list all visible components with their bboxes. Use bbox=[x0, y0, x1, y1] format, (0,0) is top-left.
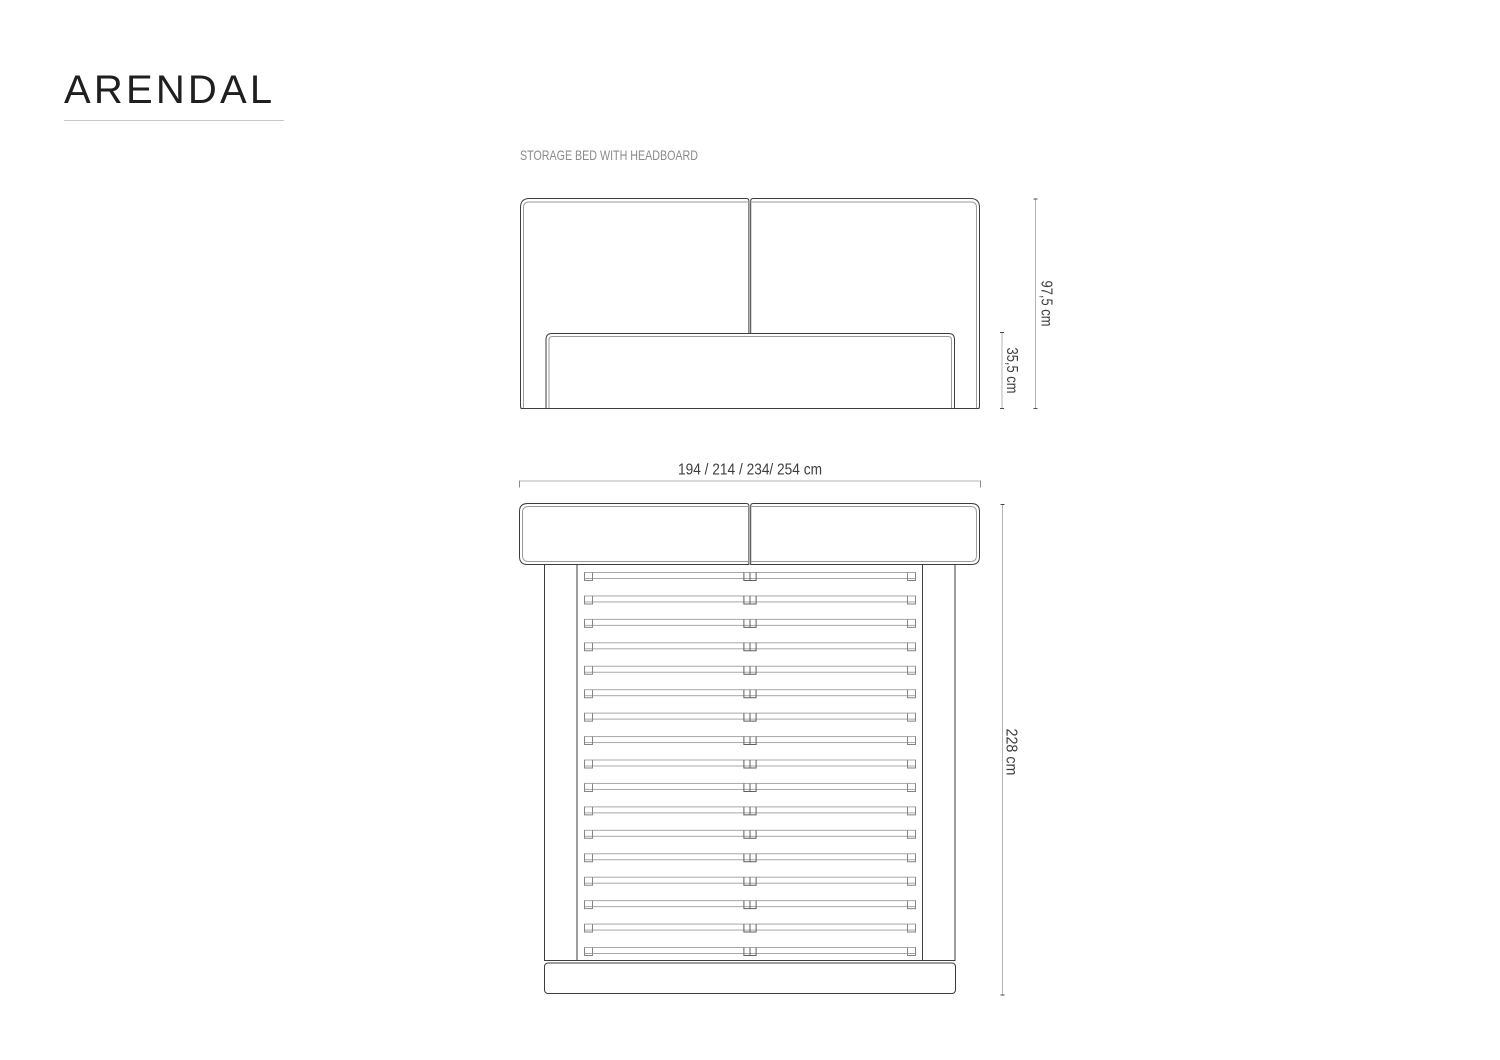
svg-text:ARENDAL: ARENDAL bbox=[64, 68, 275, 112]
svg-text:97,5 cm: 97,5 cm bbox=[1038, 281, 1055, 327]
svg-text:228 cm: 228 cm bbox=[1003, 729, 1020, 776]
svg-text:35,5 cm: 35,5 cm bbox=[1003, 348, 1020, 394]
svg-text:STORAGE BED WITH HEADBOARD: STORAGE BED WITH HEADBOARD bbox=[520, 147, 698, 163]
svg-text:194 / 214 / 234/ 254 cm: 194 / 214 / 234/ 254 cm bbox=[678, 462, 822, 479]
